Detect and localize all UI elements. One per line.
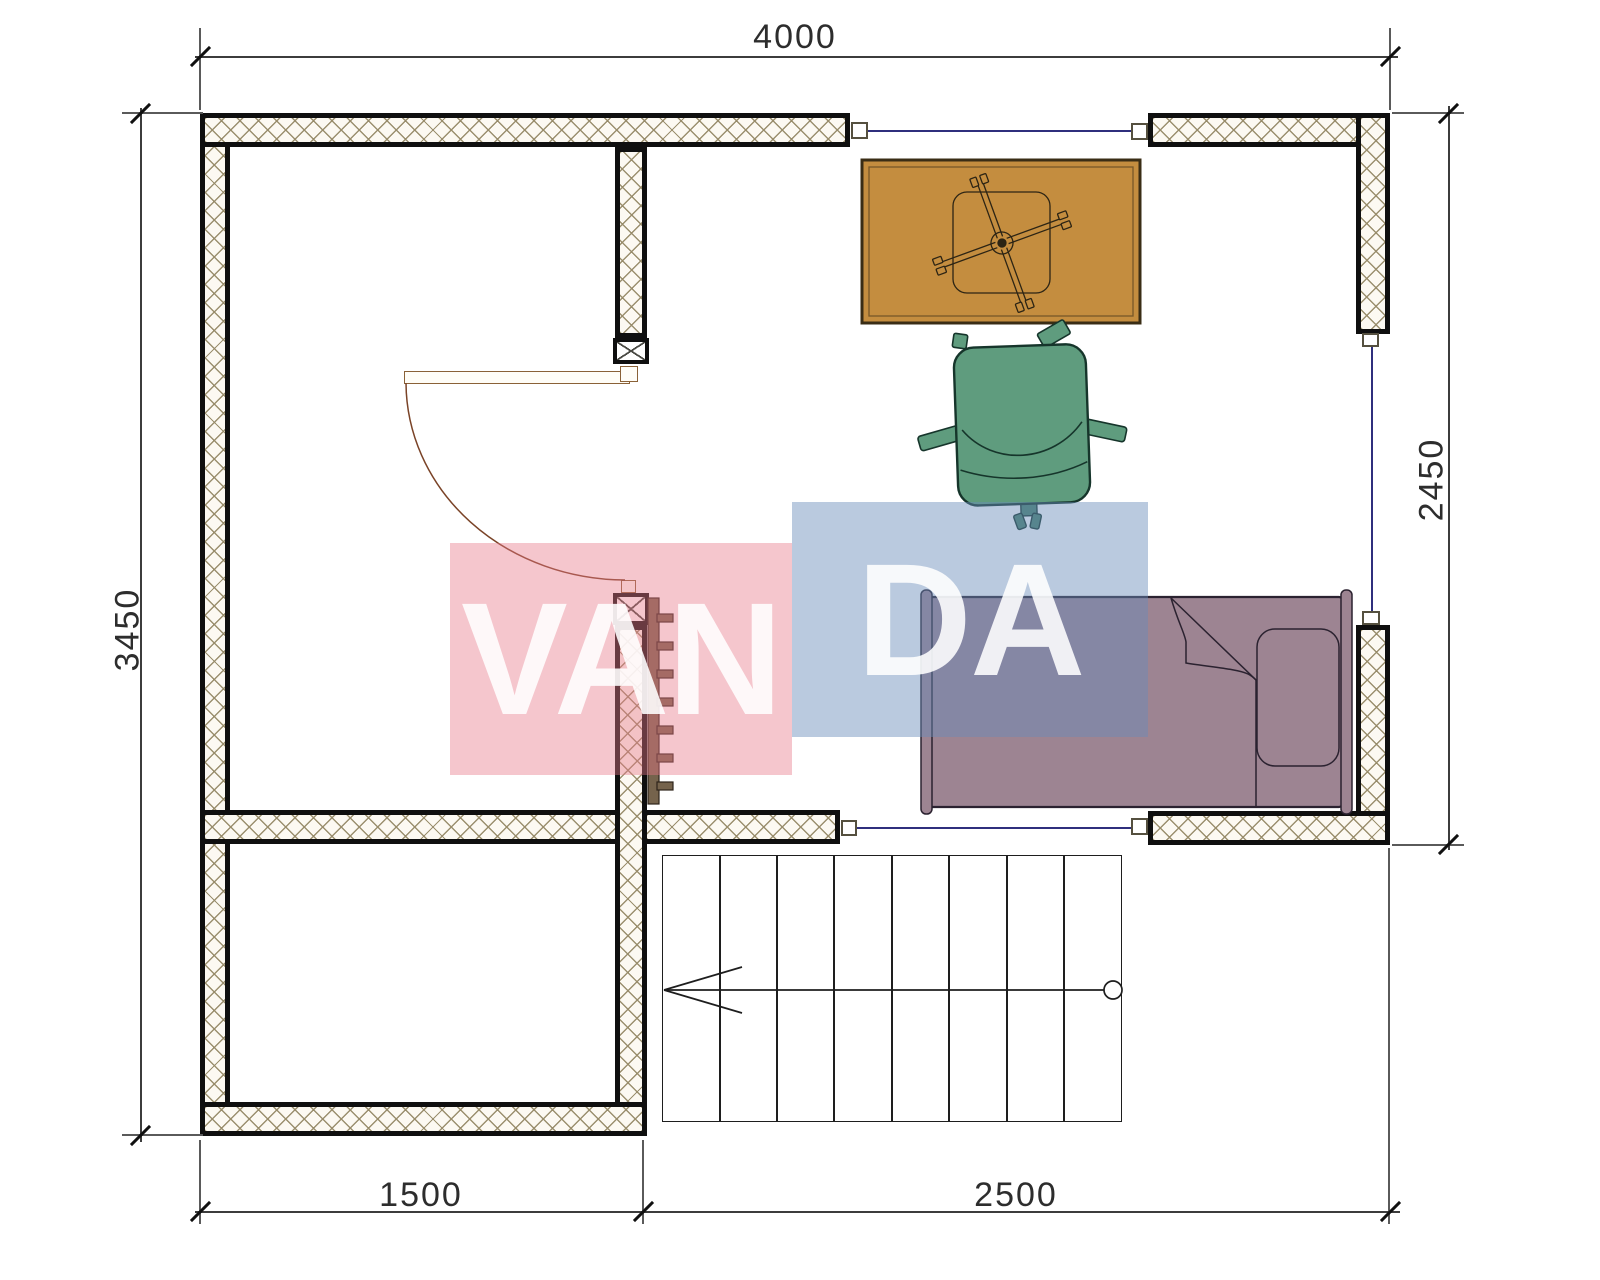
- extension-line: [1392, 112, 1464, 114]
- dimension-label-left: 3450: [109, 560, 148, 700]
- extension-line: [1388, 848, 1390, 1224]
- floor-plan: VAN DA 4000 3450 2450 1500 2500: [0, 0, 1600, 1280]
- stairs-direction-arrow: [664, 967, 1122, 1013]
- watermark-text-left: VAN: [461, 579, 781, 739]
- dimension-label-bottom-left: 1500: [346, 1176, 496, 1215]
- dimension-label-top: 4000: [720, 18, 870, 57]
- watermark-block-pink: VAN: [450, 543, 792, 775]
- extension-line: [122, 1134, 203, 1136]
- extension-line: [122, 112, 203, 114]
- extension-line: [1392, 844, 1464, 846]
- dimension-label-right: 2450: [1413, 410, 1452, 550]
- dimension-label-bottom-right: 2500: [941, 1176, 1091, 1215]
- watermark-text-right: DA: [856, 540, 1083, 700]
- extension-line: [199, 28, 201, 110]
- extension-line: [1389, 28, 1391, 110]
- watermark-block-blue: DA: [792, 502, 1148, 737]
